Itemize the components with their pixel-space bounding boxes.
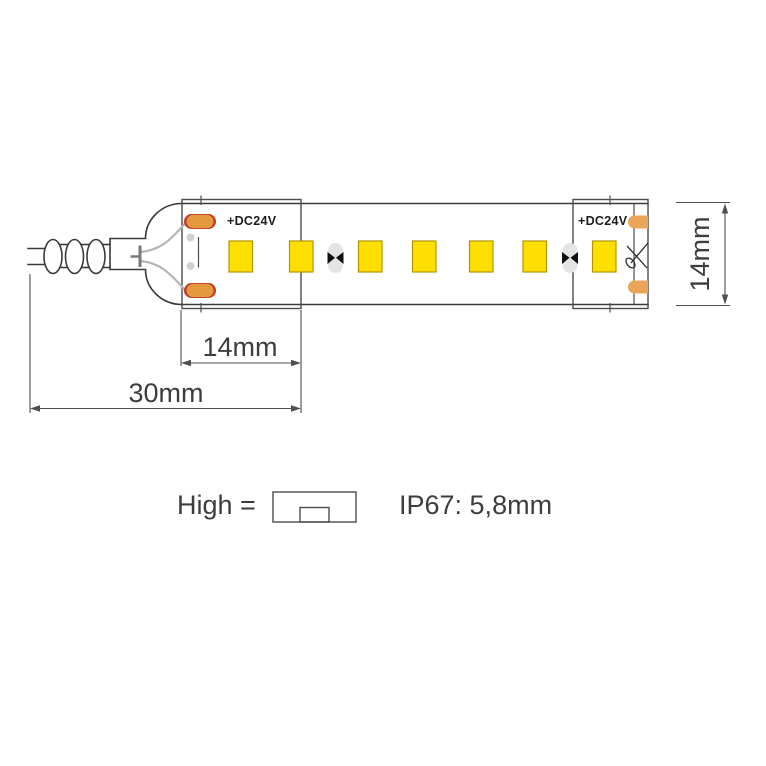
dimension-label-14mm: 14mm [202,332,277,362]
led-chip [523,241,547,272]
strain-relief-bump [66,240,84,274]
led-chip [413,241,437,272]
strain-relief-bump [44,240,62,274]
profile-icon [273,492,356,522]
cut-point-icon [562,243,578,273]
legend-ip-rating: IP67: 5,8mm [399,490,552,520]
voltage-label-right: +DC24V [578,214,628,228]
led-chip [290,241,314,272]
cut-point-icon [328,243,344,273]
solder-pad [628,281,648,294]
led-chips [229,241,616,272]
led-chip [359,241,383,272]
led-chip [229,241,253,272]
solder-pad [628,216,648,229]
dimension-label-30mm: 30mm [128,378,203,408]
end-cap-outline [110,204,182,305]
led-chip [470,241,494,272]
internal-wire [141,261,186,290]
solder-dot [187,234,195,242]
legend: High = IP67: 5,8mm [177,490,552,522]
scissors-icon [624,243,648,270]
cable-assembly [28,240,110,274]
voltage-label-left: +DC24V [227,214,277,228]
dimension-strip-height: 14mm [676,203,730,306]
led-chip [593,241,617,272]
legend-high-label: High = [177,490,256,520]
solder-pads-left [184,214,216,298]
strain-relief-bump [87,240,105,274]
solder-dot [187,262,195,270]
dimension-label-height-14mm: 14mm [685,216,715,291]
led-strip-technical-drawing: 14mm 30mm 14mm [0,0,766,766]
cap-internals [131,224,199,291]
drawing-svg: 14mm 30mm 14mm [0,0,766,766]
